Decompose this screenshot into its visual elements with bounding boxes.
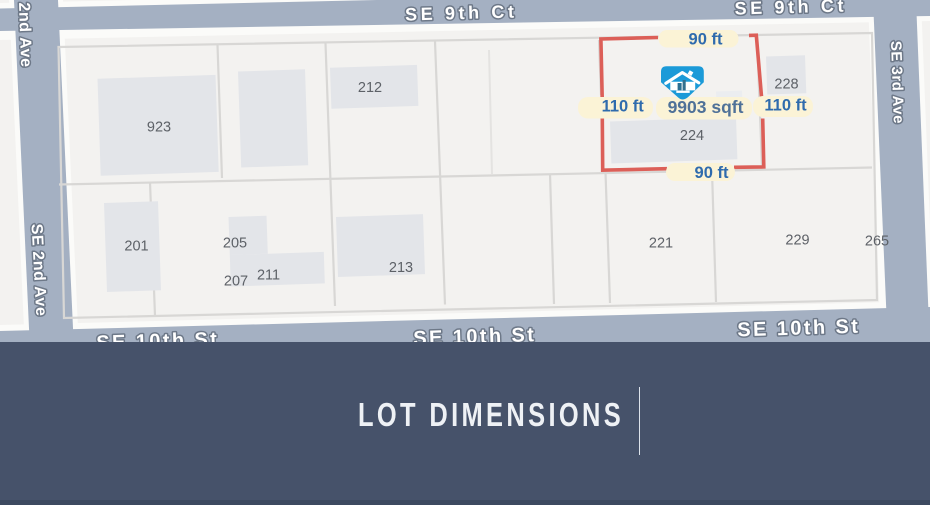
svg-text:110 ft: 110 ft	[764, 97, 807, 115]
svg-text:229: 229	[785, 233, 809, 249]
svg-text:923: 923	[147, 120, 171, 136]
svg-text:205: 205	[223, 236, 247, 252]
svg-text:207: 207	[224, 274, 248, 290]
svg-text:SE 10th St: SE 10th St	[737, 316, 861, 342]
svg-text:228: 228	[774, 77, 798, 93]
svg-text:110 ft: 110 ft	[602, 98, 645, 116]
svg-text:211: 211	[257, 268, 280, 284]
svg-text:90 ft: 90 ft	[689, 30, 723, 48]
svg-text:212: 212	[358, 80, 382, 96]
svg-text:SE 9th Ct: SE 9th Ct	[405, 1, 518, 24]
svg-text:265: 265	[865, 234, 889, 250]
svg-text:224: 224	[680, 128, 704, 144]
svg-text:90 ft: 90 ft	[695, 164, 729, 182]
svg-text:9903 sqft: 9903 sqft	[668, 97, 744, 117]
svg-text:SE 3rd Ave: SE 3rd Ave	[887, 41, 907, 125]
svg-text:SE 2nd Ave: SE 2nd Ave	[14, 0, 34, 68]
svg-text:SE 9th Ct: SE 9th Ct	[734, 0, 847, 19]
svg-text:221: 221	[649, 236, 673, 252]
svg-text:201: 201	[124, 239, 148, 255]
svg-text:213: 213	[389, 260, 413, 276]
